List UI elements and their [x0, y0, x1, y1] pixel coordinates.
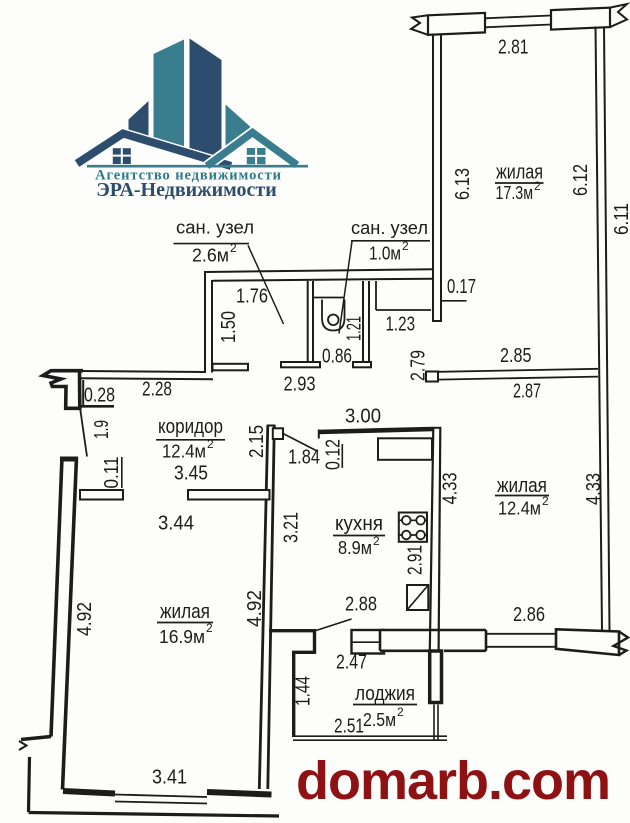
- svg-text:1.0м: 1.0м: [369, 244, 401, 264]
- svg-text:domarb.com: domarb.com: [296, 751, 610, 811]
- svg-text:1.44: 1.44: [293, 676, 315, 706]
- svg-text:2.86: 2.86: [513, 604, 545, 626]
- svg-text:2: 2: [402, 239, 409, 253]
- svg-text:2.93: 2.93: [284, 374, 316, 396]
- svg-text:ЭРА-Недвижимости: ЭРА-Недвижимости: [96, 179, 277, 201]
- svg-text:8.9м: 8.9м: [338, 538, 372, 558]
- svg-text:17.3м: 17.3м: [496, 183, 534, 203]
- svg-text:3.41: 3.41: [152, 767, 187, 789]
- svg-text:4.33: 4.33: [440, 473, 462, 505]
- svg-text:3.44: 3.44: [158, 513, 194, 535]
- svg-text:4.33: 4.33: [583, 473, 605, 505]
- svg-text:1.50: 1.50: [218, 311, 240, 343]
- svg-text:2.6м: 2.6м: [192, 246, 229, 266]
- svg-text:1.23: 1.23: [386, 314, 416, 336]
- svg-text:2.85: 2.85: [500, 345, 532, 367]
- svg-text:2.47: 2.47: [336, 652, 367, 674]
- svg-text:2: 2: [230, 241, 237, 255]
- svg-text:0.17: 0.17: [447, 276, 476, 298]
- svg-text:2.79: 2.79: [408, 350, 430, 381]
- svg-text:2.88: 2.88: [345, 594, 377, 616]
- svg-text:0.12: 0.12: [323, 439, 345, 470]
- svg-text:2: 2: [534, 179, 541, 193]
- svg-text:2.15: 2.15: [246, 425, 268, 458]
- svg-text:коридор: коридор: [158, 416, 223, 438]
- svg-text:3.00: 3.00: [345, 406, 381, 428]
- svg-text:кухня: кухня: [335, 513, 383, 535]
- svg-text:лоджия: лоджия: [355, 683, 415, 705]
- svg-text:1.84: 1.84: [288, 447, 320, 469]
- svg-text:сан. узел: сан. узел: [351, 218, 428, 238]
- svg-text:2.91: 2.91: [405, 545, 427, 575]
- svg-text:12.4м: 12.4м: [498, 499, 541, 519]
- svg-text:2.87: 2.87: [513, 381, 541, 403]
- svg-text:2.28: 2.28: [142, 379, 172, 401]
- svg-text:4.92: 4.92: [244, 590, 266, 627]
- svg-text:6.12: 6.12: [570, 164, 592, 196]
- svg-text:4.92: 4.92: [74, 602, 96, 636]
- svg-text:2: 2: [373, 534, 380, 548]
- svg-text:жилая: жилая: [160, 601, 210, 623]
- svg-text:2.51: 2.51: [334, 716, 364, 738]
- svg-text:сан. узел: сан. узел: [176, 218, 254, 238]
- svg-text:2.5м: 2.5м: [363, 710, 396, 730]
- svg-text:0.28: 0.28: [84, 385, 115, 407]
- svg-text:2: 2: [206, 621, 213, 635]
- svg-text:2: 2: [207, 437, 214, 451]
- svg-text:1.9: 1.9: [91, 420, 113, 439]
- svg-text:1.76: 1.76: [236, 286, 268, 308]
- svg-text:жилая: жилая: [497, 475, 547, 497]
- svg-text:3.45: 3.45: [174, 463, 208, 485]
- svg-text:0.86: 0.86: [322, 346, 352, 368]
- svg-text:12.4м: 12.4м: [162, 442, 206, 462]
- svg-text:0.11: 0.11: [101, 457, 123, 489]
- svg-text:2.81: 2.81: [498, 37, 529, 59]
- svg-text:3.21: 3.21: [281, 512, 303, 543]
- svg-text:2: 2: [397, 705, 404, 719]
- svg-text:1.21: 1.21: [344, 316, 366, 341]
- svg-text:2: 2: [542, 494, 549, 508]
- svg-text:16.9м: 16.9м: [159, 627, 205, 647]
- svg-text:6.11: 6.11: [611, 203, 630, 235]
- svg-text:6.13: 6.13: [452, 168, 474, 200]
